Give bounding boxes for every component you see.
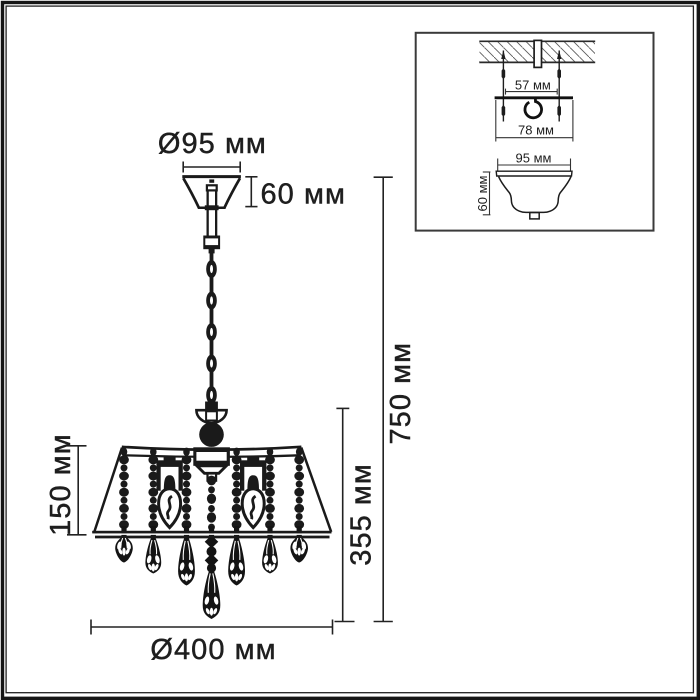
svg-text:Ø95 мм: Ø95 мм	[158, 128, 267, 160]
svg-text:95 мм: 95 мм	[516, 151, 552, 166]
svg-text:Ø400 мм: Ø400 мм	[150, 634, 276, 666]
svg-text:60 мм: 60 мм	[261, 178, 346, 210]
svg-text:150 мм: 150 мм	[45, 433, 77, 536]
svg-text:57 мм: 57 мм	[515, 77, 551, 92]
svg-text:60 мм: 60 мм	[475, 175, 490, 211]
svg-text:355 мм: 355 мм	[346, 463, 378, 566]
svg-text:750 мм: 750 мм	[385, 342, 417, 445]
svg-text:78 мм: 78 мм	[518, 122, 554, 137]
